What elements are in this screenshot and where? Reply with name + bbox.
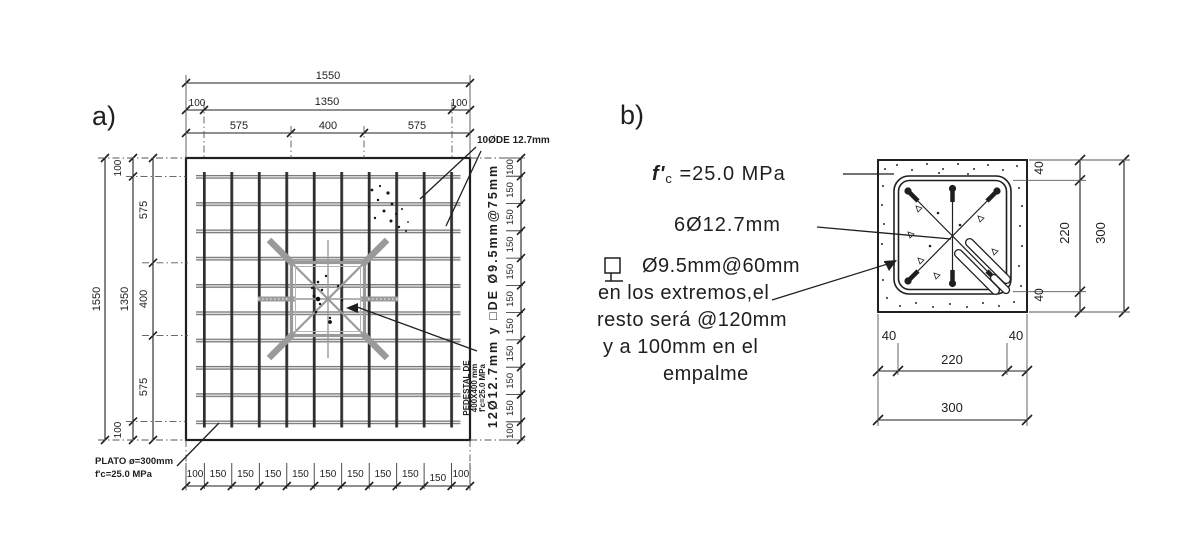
svg-text:resto será @120mm: resto será @120mm — [597, 309, 787, 331]
svg-text:PLATO ø=300mm: PLATO ø=300mm — [95, 456, 173, 467]
svg-text:220: 220 — [1057, 222, 1072, 244]
svg-text:f'c=25.0 MPa: f'c=25.0 MPa — [95, 469, 153, 480]
svg-text:100: 100 — [505, 423, 516, 439]
svg-text:575: 575 — [408, 120, 426, 132]
svg-text:40: 40 — [1032, 288, 1046, 302]
svg-text:150: 150 — [505, 264, 516, 280]
part-b-column-section: b) — [597, 100, 1130, 426]
svg-text:Ø9.5mm@60mm: Ø9.5mm@60mm — [642, 255, 800, 277]
pedestal-note-small: PEDESTAL DE 400X400 mm f'c=25.0 MPa — [462, 360, 487, 416]
svg-text:100: 100 — [452, 469, 469, 480]
svg-text:150: 150 — [505, 291, 516, 307]
foundation-drawing: a) — [0, 0, 1204, 542]
svg-text:400: 400 — [138, 290, 150, 308]
svg-text:150: 150 — [265, 469, 282, 480]
figure-canvas: a) — [0, 0, 1204, 542]
fc-note: f'c =25.0 MPa — [652, 163, 786, 186]
part-a-label: a) — [92, 101, 116, 131]
top-bars-label: 10ØDE 12.7mm — [477, 135, 550, 146]
svg-text:100: 100 — [451, 98, 468, 109]
plate-note: PLATO ø=300mm f'c=25.0 MPa — [95, 456, 173, 480]
svg-text:150: 150 — [505, 400, 516, 416]
dim-bottom-labels: 100 150 150 150 150 150 150 150 150 150 … — [187, 469, 470, 484]
svg-text:150: 150 — [505, 209, 516, 225]
svg-text:1550: 1550 — [316, 70, 340, 82]
svg-text:100: 100 — [189, 98, 206, 109]
svg-text:empalme: empalme — [663, 363, 749, 385]
svg-text:575: 575 — [138, 201, 150, 219]
svg-text:150: 150 — [237, 469, 254, 480]
svg-text:150: 150 — [505, 182, 516, 198]
svg-text:150: 150 — [505, 373, 516, 389]
svg-text:100: 100 — [113, 421, 124, 438]
stirrup-note: Ø9.5mm@60mm en los extremos,el resto ser… — [597, 255, 800, 385]
svg-text:100: 100 — [505, 159, 516, 175]
bars-note: 6Ø12.7mm — [674, 214, 781, 236]
svg-text:150: 150 — [210, 469, 227, 480]
svg-text:150: 150 — [402, 469, 419, 480]
svg-text:40: 40 — [1032, 161, 1046, 175]
svg-text:150: 150 — [320, 469, 337, 480]
dim-left-labels: 1550 1350 100 100 575 400 575 — [91, 159, 150, 438]
stirrup-symbol — [605, 258, 623, 281]
dim-right-labels: 100 150 150 150 150 150 150 150 150 150 … — [505, 159, 516, 439]
svg-text:575: 575 — [230, 120, 248, 132]
svg-text:f'c=25.0 MPa: f'c=25.0 MPa — [478, 363, 487, 411]
svg-text:400: 400 — [319, 120, 337, 132]
svg-text:100: 100 — [187, 469, 204, 480]
svg-text:150: 150 — [505, 236, 516, 252]
bars-leader — [817, 227, 951, 239]
svg-text:150: 150 — [505, 318, 516, 334]
part-b-label: b) — [620, 100, 644, 130]
svg-text:en los extremos,el: en los extremos,el — [598, 282, 769, 304]
dim-top — [182, 75, 474, 158]
svg-text:1550: 1550 — [91, 287, 103, 311]
dim-top-labels: 1550 100 1350 100 575 400 575 — [189, 70, 468, 132]
svg-text:300: 300 — [1093, 222, 1108, 244]
pedestal-vertical-note: 12Ø12.7mm y □DE Ø9.5mm@75mm — [486, 164, 500, 428]
svg-text:150: 150 — [375, 469, 392, 480]
svg-text:150: 150 — [505, 346, 516, 362]
svg-text:y a 100mm en el: y a 100mm en el — [603, 336, 758, 358]
svg-text:300: 300 — [941, 400, 963, 415]
svg-text:575: 575 — [138, 378, 150, 396]
dim-b-right-labels: 40 220 40 300 — [1032, 161, 1108, 302]
svg-text:150: 150 — [429, 473, 446, 484]
svg-text:220: 220 — [941, 352, 963, 367]
svg-text:150: 150 — [347, 469, 364, 480]
svg-text:100: 100 — [113, 159, 124, 176]
svg-text:40: 40 — [1009, 328, 1023, 343]
svg-text:1350: 1350 — [119, 287, 131, 311]
part-a-footing-plan: a) — [91, 70, 550, 491]
svg-text:150: 150 — [292, 469, 309, 480]
svg-text:40: 40 — [882, 328, 896, 343]
leader-plate-note — [177, 423, 219, 466]
svg-text:1350: 1350 — [315, 96, 339, 108]
